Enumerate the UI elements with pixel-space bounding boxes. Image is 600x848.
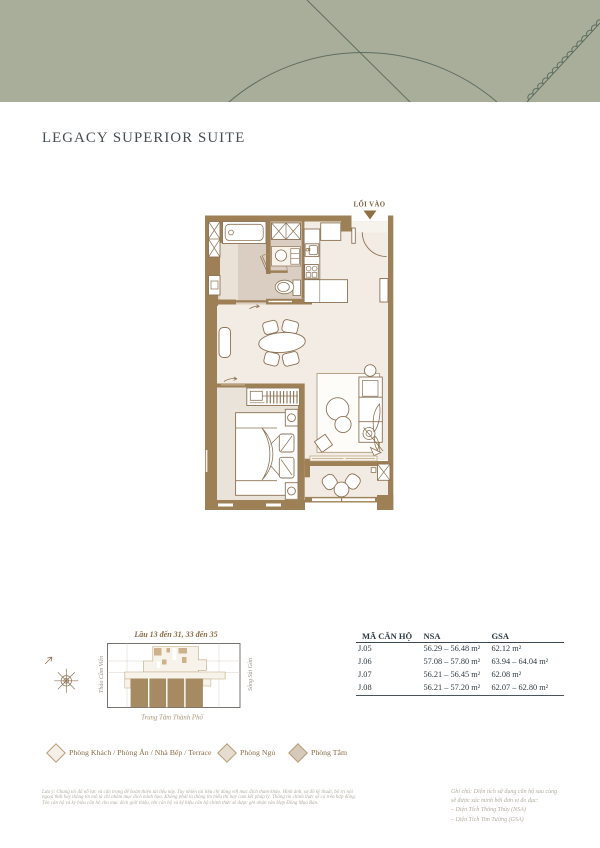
svg-text:Sông Sài Gòn: Sông Sài Gòn	[248, 658, 254, 691]
svg-text:Trung Tâm Thành Phố: Trung Tâm Thành Phố	[141, 715, 203, 722]
svg-text:Thảo Cầm Viên: Thảo Cầm Viên	[98, 656, 105, 693]
svg-text:LỐI VÀO: LỐI VÀO	[354, 201, 386, 209]
svg-text:Lầu 13 đến 31, 33 đến 35: Lầu 13 đến 31, 33 đến 35	[133, 630, 217, 639]
